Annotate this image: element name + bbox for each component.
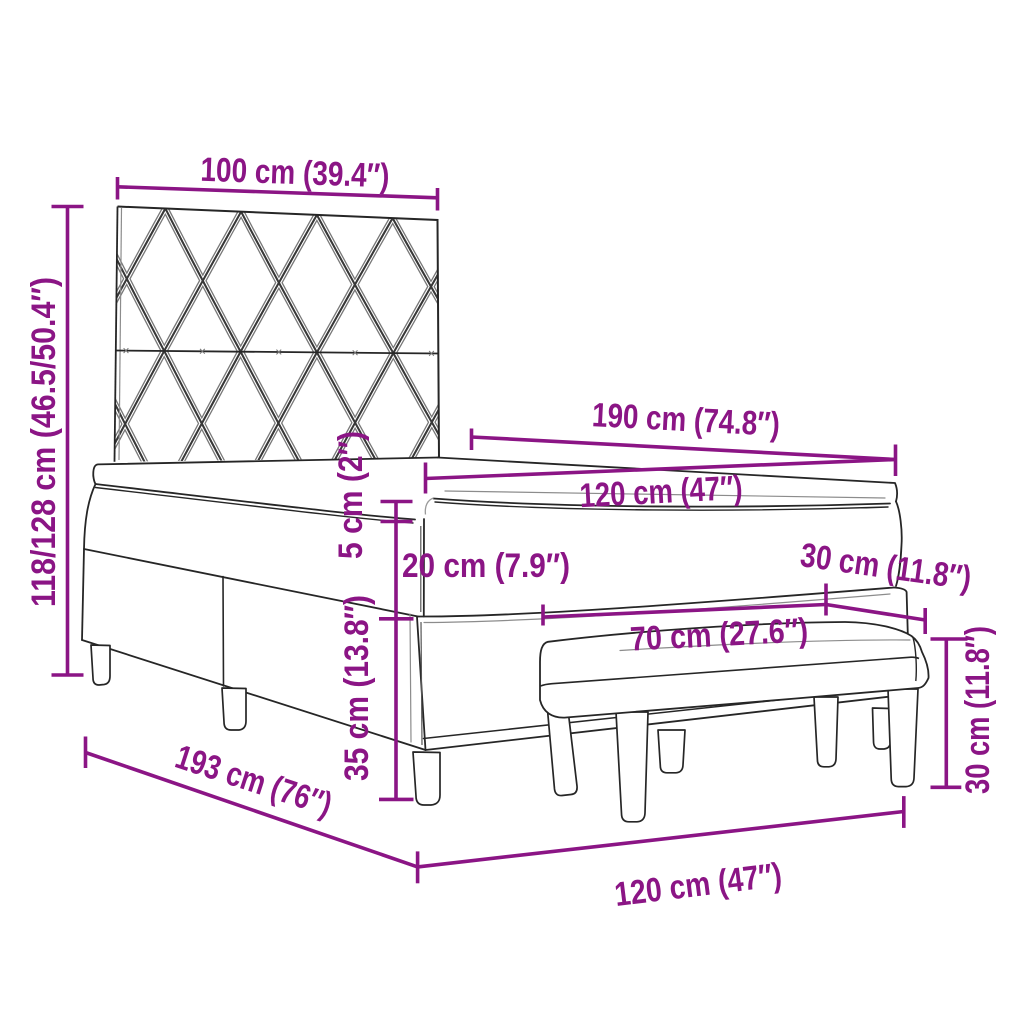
svg-text:100 cm (39.4″): 100 cm (39.4″) xyxy=(200,151,390,196)
svg-text:30 cm (11.8″): 30 cm (11.8″) xyxy=(959,626,997,794)
svg-text:35 cm (13.8″): 35 cm (13.8″) xyxy=(338,595,376,781)
svg-text:5 cm (2″): 5 cm (2″) xyxy=(332,431,370,559)
svg-text:20 cm (7.9″): 20 cm (7.9″) xyxy=(402,547,570,585)
svg-text:118/128 cm (46.5/50.4″): 118/128 cm (46.5/50.4″) xyxy=(25,277,63,607)
